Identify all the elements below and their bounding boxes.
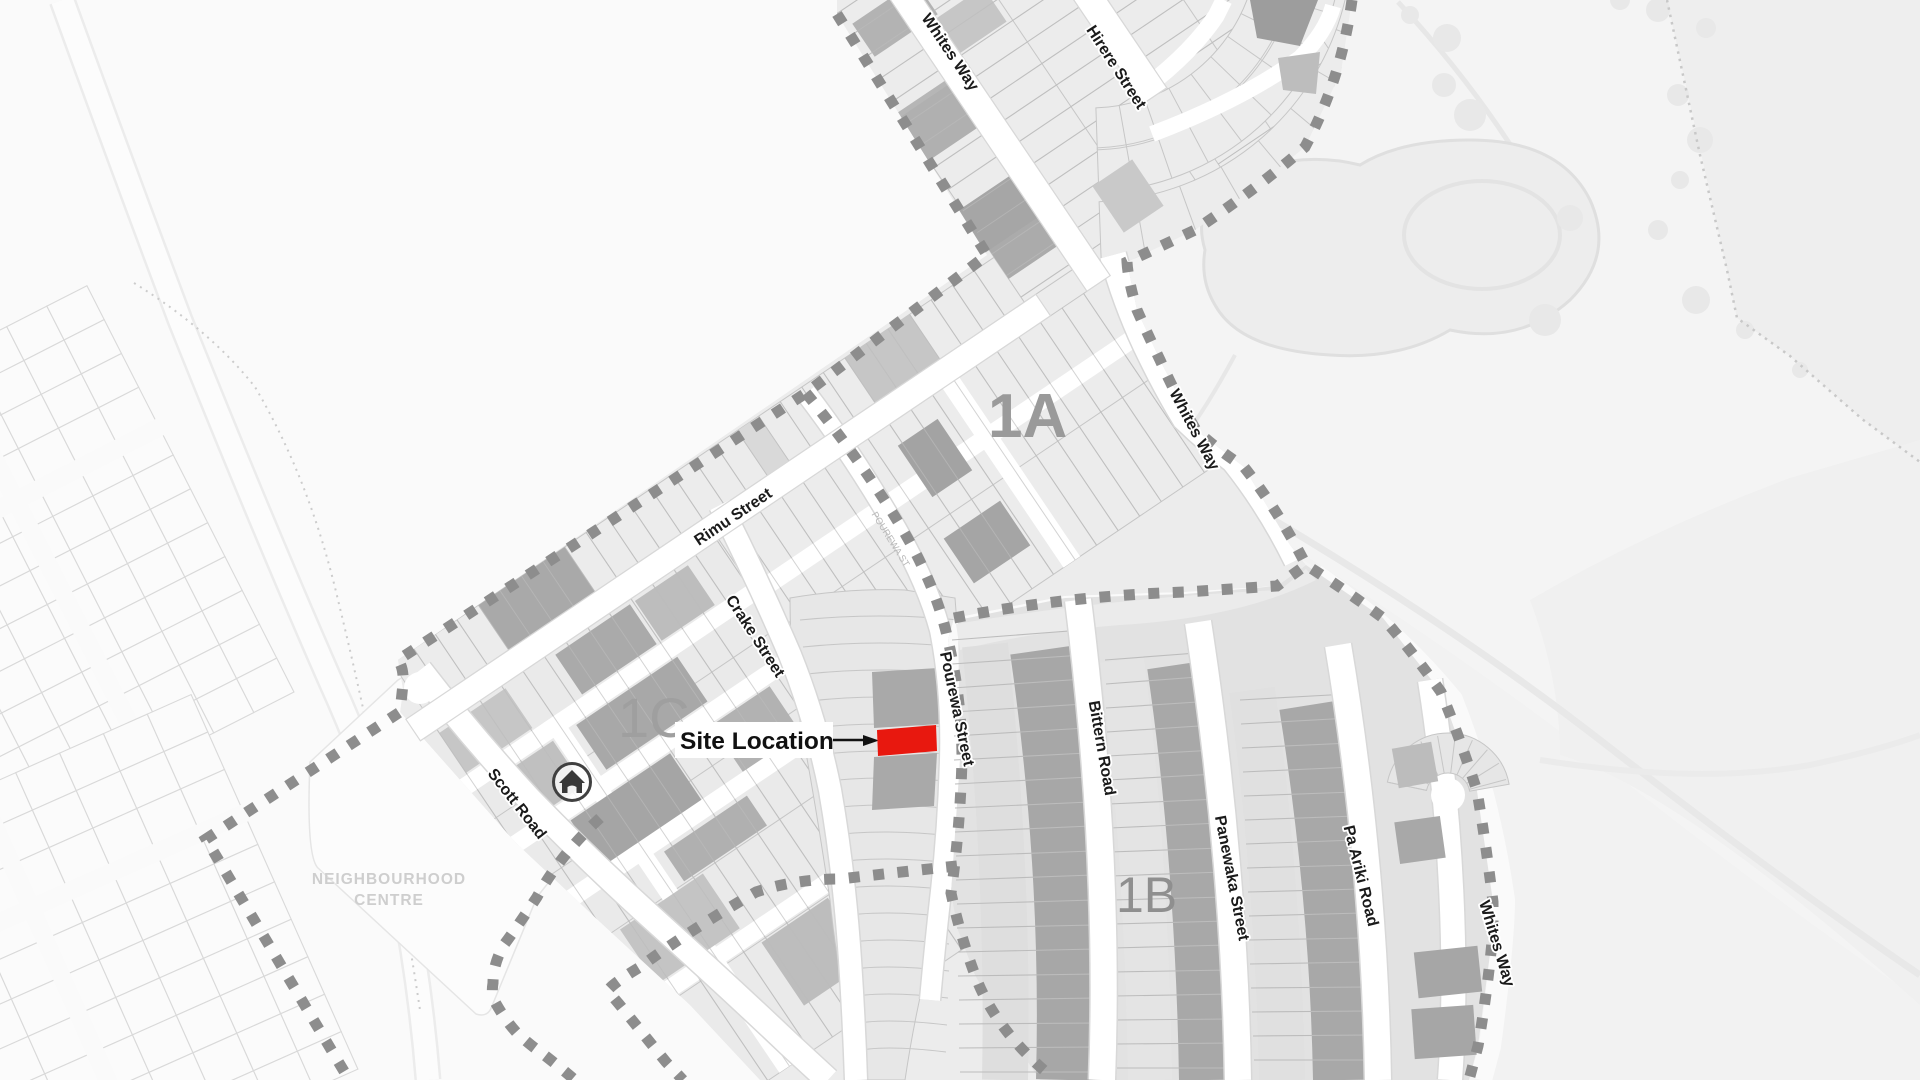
svg-text:1B: 1B [1116,867,1177,923]
svg-text:Site Location: Site Location [680,728,834,755]
svg-text:1A: 1A [988,382,1067,451]
svg-text:CENTRE: CENTRE [354,892,424,909]
svg-text:NEIGHBOURHOOD: NEIGHBOURHOOD [312,871,466,888]
